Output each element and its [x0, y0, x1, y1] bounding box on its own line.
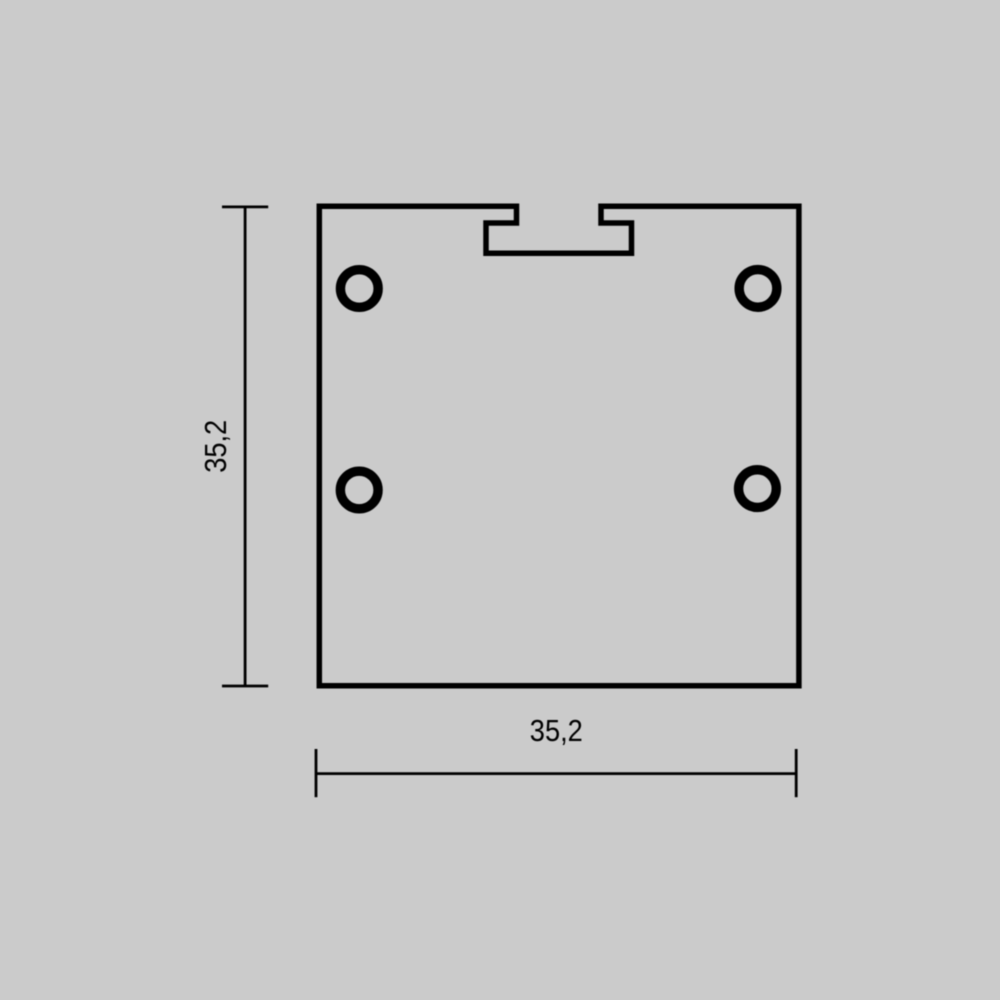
svg-text:35,2: 35,2: [530, 714, 583, 748]
svg-text:35,2: 35,2: [199, 420, 233, 473]
